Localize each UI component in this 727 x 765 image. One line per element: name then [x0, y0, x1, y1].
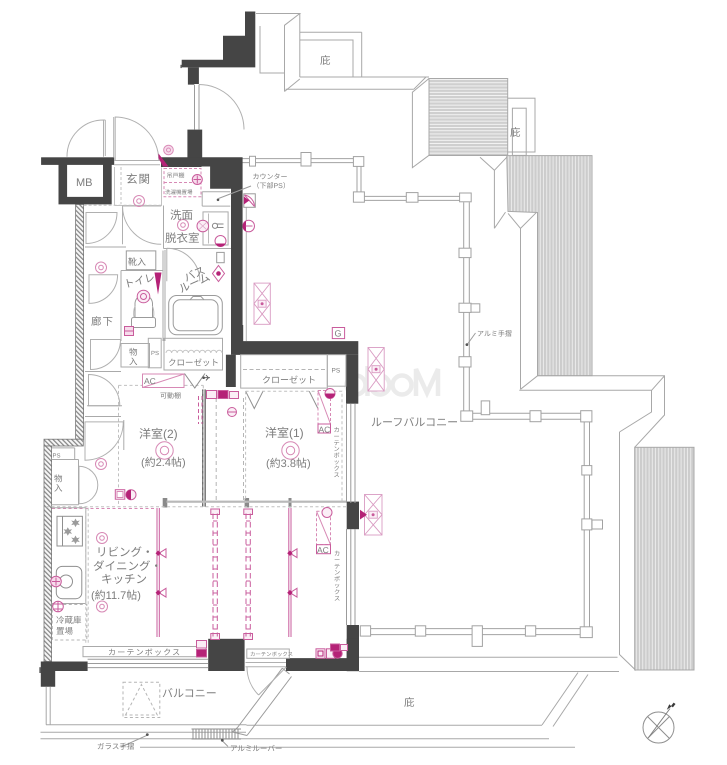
svg-text:クローゼット: クローゼット [168, 358, 219, 368]
svg-text:ス: ス [334, 472, 340, 479]
svg-text:置場: 置場 [56, 626, 74, 636]
svg-text:PS: PS [332, 368, 341, 375]
svg-text:アルミ手摺: アルミ手摺 [477, 330, 512, 338]
svg-text:カーテンボックス: カーテンボックス [108, 648, 181, 657]
svg-text:入: 入 [54, 483, 63, 493]
svg-text:廊下: 廊下 [91, 316, 114, 328]
svg-text:AC: AC [144, 376, 156, 386]
svg-text:冷蔵庫: 冷蔵庫 [56, 615, 82, 625]
svg-text:リビング・: リビング・ [96, 546, 154, 559]
svg-text:ルーフバルコニー: ルーフバルコニー [371, 416, 458, 429]
svg-text:カウンター: カウンター [253, 173, 288, 181]
svg-text:ガラス手摺: ガラス手摺 [97, 742, 134, 751]
svg-text:MB: MB [76, 177, 93, 189]
svg-text:ダイニング・: ダイニング・ [93, 560, 162, 573]
svg-text:靴入: 靴入 [128, 257, 146, 267]
svg-text:PS: PS [151, 350, 159, 357]
svg-text:庇: 庇 [404, 697, 415, 709]
svg-text:物: 物 [129, 347, 138, 357]
svg-text:庇: 庇 [320, 55, 331, 67]
svg-text:物: 物 [54, 474, 63, 484]
svg-text:（下部PS）: （下部PS） [253, 182, 290, 190]
svg-text:AC: AC [317, 545, 329, 555]
svg-text:庇: 庇 [510, 127, 521, 139]
svg-text:洋室(2): 洋室(2) [139, 427, 178, 441]
svg-text:キッチン: キッチン [101, 573, 147, 586]
svg-text:(約3.8帖): (約3.8帖) [266, 457, 311, 470]
svg-text:PS: PS [53, 453, 61, 460]
svg-text:吊戸棚: 吊戸棚 [167, 172, 185, 180]
svg-text:洗面: 洗面 [170, 209, 193, 222]
svg-text:AC: AC [319, 425, 331, 435]
svg-text:入: 入 [129, 357, 138, 367]
svg-text:洗濯機置場: 洗濯機置場 [165, 189, 193, 196]
svg-text:洋室(1): 洋室(1) [265, 426, 304, 440]
svg-text:G: G [335, 329, 342, 339]
svg-text:玄関: 玄関 [126, 173, 151, 186]
svg-text:(約11.7帖): (約11.7帖) [91, 589, 141, 602]
svg-text:カーテンボックス: カーテンボックス [250, 651, 293, 658]
svg-text:(約2.4帖): (約2.4帖) [141, 456, 186, 469]
svg-text:可動棚: 可動棚 [160, 392, 181, 400]
svg-text:バルコニー: バルコニー [162, 687, 217, 700]
svg-text:アルミルーバー: アルミルーバー [230, 744, 282, 753]
svg-text:脱衣室: 脱衣室 [165, 232, 200, 245]
svg-text:クローゼット: クローゼット [262, 375, 316, 385]
svg-text:ス: ス [334, 595, 340, 602]
